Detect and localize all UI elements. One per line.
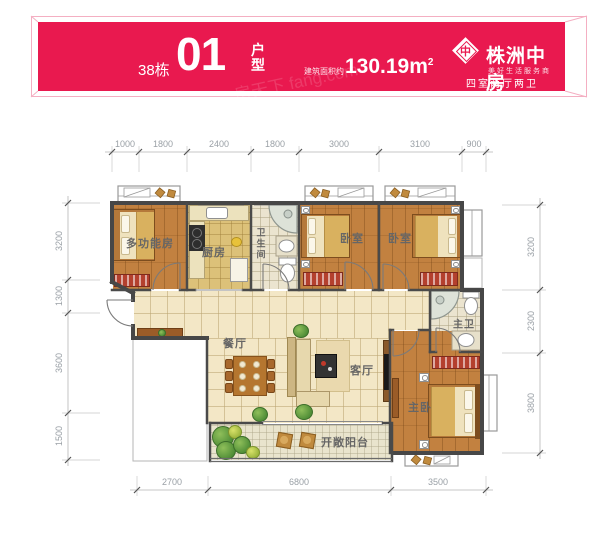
dim-right: 2300 <box>526 311 536 331</box>
dim-right: 3200 <box>526 237 536 257</box>
dim-right: 3800 <box>526 393 536 413</box>
wardrobe <box>114 274 150 287</box>
dim-top: 900 <box>466 139 481 149</box>
layout-summary: 四室两厅两卫 <box>466 75 538 90</box>
wardrobe <box>432 356 480 369</box>
nightstand <box>419 440 429 449</box>
room-label-bedroom2: 卧室 <box>388 230 412 246</box>
dim-top: 2400 <box>209 139 229 149</box>
floorplan-page: { "header": { "building": "38栋", "unit_n… <box>0 0 600 534</box>
nightstand <box>451 206 460 214</box>
dim-top: 3100 <box>410 139 430 149</box>
dim-bottom: 3500 <box>428 477 448 487</box>
dim-top: 3000 <box>329 139 349 149</box>
dim-left: 3200 <box>54 231 64 251</box>
stool <box>299 432 316 449</box>
dining-chair <box>225 359 233 369</box>
dim-left: 1500 <box>54 426 64 446</box>
dining-chair <box>225 383 233 393</box>
room-label-bathroom: 卫生间 <box>255 228 268 261</box>
wardrobe <box>420 272 458 286</box>
fridge <box>230 258 248 282</box>
dining-chair <box>225 371 233 381</box>
unit-number: 01 <box>176 27 225 81</box>
bed <box>428 384 481 438</box>
room-label-living: 客厅 <box>350 362 374 378</box>
nightstand <box>301 260 310 268</box>
dim-bottom: 6800 <box>289 477 309 487</box>
nightstand <box>451 260 460 268</box>
dim-left: 1300 <box>54 286 64 306</box>
unit-type-label: 户型 <box>251 43 267 73</box>
dim-top: 1800 <box>153 139 173 149</box>
room-label-kitchen: 厨房 <box>202 244 226 260</box>
dim-top: 1000 <box>115 139 135 149</box>
nightstand <box>301 206 310 214</box>
kitchen-bowl <box>231 237 242 247</box>
dim-left: 3600 <box>54 353 64 373</box>
area-superscript: 2 <box>428 57 434 68</box>
dining-chair <box>267 359 275 369</box>
tv <box>384 354 389 390</box>
plant <box>295 404 313 420</box>
dining-chair <box>267 383 275 393</box>
dining-chair <box>267 371 275 381</box>
balcony-plant <box>246 446 260 459</box>
brand-diamond-icon: 中 <box>452 37 479 64</box>
plant <box>293 324 309 338</box>
plant <box>252 407 268 422</box>
room-label-multi: 多功能房 <box>126 235 174 251</box>
dresser <box>392 378 399 418</box>
room-label-master-bedroom: 主卧 <box>408 399 432 415</box>
dim-bottom: 2700 <box>162 477 182 487</box>
nightstand <box>419 373 429 382</box>
plant <box>158 329 166 337</box>
dim-top: 1800 <box>265 139 285 149</box>
building-number: 38栋 <box>138 59 170 80</box>
floor-dining-hall <box>134 291 430 330</box>
stool <box>276 432 293 449</box>
kitchen-sink <box>206 207 228 219</box>
wardrobe <box>303 272 343 286</box>
title-banner: 38栋 01 户型 建筑面积约 130.19m2 中 株洲中房 美好生活服务商 … <box>38 22 565 91</box>
room-label-dining: 餐厅 <box>223 335 247 351</box>
room-label-master-bath: 主卫 <box>453 316 475 331</box>
room-label-balcony: 开敞阳台 <box>321 434 369 450</box>
dining-table <box>233 356 267 396</box>
coffee-table <box>315 354 337 378</box>
sofa <box>296 339 311 393</box>
room-label-bedroom1: 卧室 <box>340 230 364 246</box>
bed <box>412 214 461 258</box>
sofa-back <box>287 337 296 397</box>
